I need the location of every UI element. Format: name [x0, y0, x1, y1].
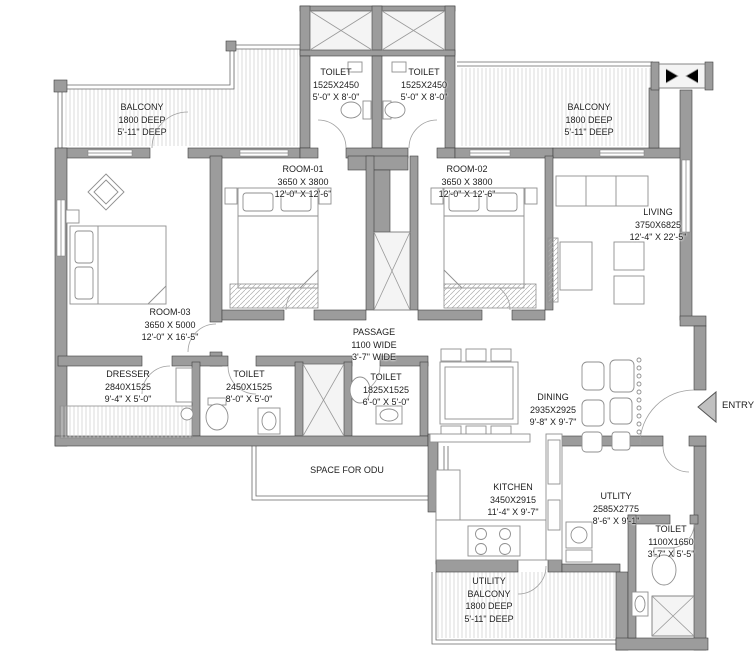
annotation-text: SPACE FOR ODU	[310, 464, 384, 477]
label-toilet-top-left: TOILET 1525X2450 5'-0" X 8'-0"	[313, 66, 360, 104]
room-name: LIVING	[630, 206, 687, 219]
room-dim-mm: 1100 WIDE	[351, 339, 396, 352]
room-name: BALCONY	[464, 588, 513, 601]
room-name: DRESSER	[105, 368, 152, 381]
room-name: TOILET	[313, 66, 360, 79]
room-dim-mm: 1100X1650	[648, 536, 695, 549]
label-room-01: ROOM-01 3650 X 3800 12'-0" X 12'-6"	[275, 163, 332, 201]
annotation-text: ENTRY	[722, 400, 754, 411]
label-toilet-mid-left: TOILET 2450X1525 8'-0" X 5'-0"	[226, 368, 273, 406]
room-dim-mm: 1825X1525	[363, 384, 410, 397]
label-passage: PASSAGE 1100 WIDE 3'-7" WIDE	[351, 326, 396, 364]
room-name: TOILET	[226, 368, 273, 381]
label-toilet-mid-right: TOILET 1825X1525 6'-0" X 5'-0"	[363, 371, 410, 409]
room-name: BALCONY	[117, 101, 166, 114]
room-dim-mm: 2935X2925	[530, 404, 577, 417]
balcony-right-floor	[457, 62, 657, 146]
utility-appliances	[566, 522, 592, 562]
label-living: LIVING 3750X6825 12'-4" X 22'-5"	[630, 206, 687, 244]
room-dim-ft: 6'-0" X 5'-0"	[363, 396, 410, 409]
room-dim-ft: 9'-4" X 5'-0"	[105, 393, 152, 406]
label-balcony-right: BALCONY 1800 DEEP 5'-11" DEEP	[564, 101, 613, 139]
room-dim-mm: 1525X2450	[401, 79, 448, 92]
label-kitchen: KITCHEN 3450X2915 11'-4" X 9'-7"	[487, 481, 538, 519]
label-utility-balcony: UTILITY BALCONY 1800 DEEP 5'-11" DEEP	[464, 575, 513, 625]
entry-arrow-icon	[698, 392, 716, 422]
bed-room-02	[431, 188, 537, 288]
room-dim-mm: 1800 DEEP	[564, 114, 613, 127]
room-dim-ft: 12'-0" X 12'-6"	[439, 188, 496, 201]
label-dresser: DRESSER 2840X1525 9'-4" X 5'-0"	[105, 368, 152, 406]
room-dim-ft: 12'-0" X 12'-6"	[275, 188, 332, 201]
room-name: TOILET	[363, 371, 410, 384]
room-dim-ft: 5'-11" DEEP	[564, 126, 613, 139]
room-dim-mm: 1800 DEEP	[117, 114, 166, 127]
label-dining: DINING 2935X2925 9'-8" X 9'-7"	[530, 391, 577, 429]
room-name: TOILET	[401, 66, 448, 79]
room-dim-ft: 5'-0" X 8'-0"	[313, 91, 360, 104]
room-dim-mm: 3650 X 5000	[142, 319, 199, 332]
room-name: ROOM-01	[275, 163, 332, 176]
bead-screen	[637, 358, 641, 434]
room-dim-mm: 3750X6825	[630, 219, 687, 232]
room-name: ROOM-03	[142, 306, 199, 319]
room-dim-ft: 5'-11" DEEP	[117, 126, 166, 139]
room-name: PASSAGE	[351, 326, 396, 339]
label-space-for-odu: SPACE FOR ODU	[310, 464, 384, 477]
room-dim-ft: 5'-0" X 8'-0"	[401, 91, 448, 104]
room-dim-ft: 11'-4" X 9'-7"	[487, 506, 538, 519]
room-dim-ft: 12'-4" X 22'-5"	[630, 231, 687, 244]
wardrobe-room-02	[444, 284, 536, 308]
room-name: ROOM-02	[439, 163, 496, 176]
label-toilet-top-right: TOILET 1525X2450 5'-0" X 8'-0"	[401, 66, 448, 104]
room-name: DINING	[530, 391, 577, 404]
bed-room-03	[66, 174, 166, 304]
room-name: BALCONY	[564, 101, 613, 114]
label-room-02: ROOM-02 3650 X 3800 12'-0" X 12'-6"	[439, 163, 496, 201]
room-dim-mm: 2585X2775	[593, 503, 640, 516]
balcony-left-floor	[58, 45, 300, 148]
label-entry: ENTRY	[722, 400, 754, 411]
shaft-mid	[303, 364, 344, 436]
room-dim-ft: 5'-11" DEEP	[464, 613, 513, 626]
duct-bottom-right	[652, 596, 694, 636]
room-dim-mm: 1800 DEEP	[464, 600, 513, 613]
room-dim-mm: 3450X2915	[487, 494, 538, 507]
closet-between-rooms	[374, 232, 410, 310]
room-dim-mm: 1525X2450	[313, 79, 360, 92]
room-dim-ft: 3'-7" WIDE	[351, 351, 396, 364]
label-room-03: ROOM-03 3650 X 5000 12'-0" X 16'-5"	[142, 306, 199, 344]
floor-plan: TOILET 1525X2450 5'-0" X 8'-0" TOILET 15…	[0, 0, 756, 666]
label-balcony-left: BALCONY 1800 DEEP 5'-11" DEEP	[117, 101, 166, 139]
room-dim-mm: 3650 X 3800	[439, 176, 496, 189]
room-dim-ft: 3'-7" X 5'-5"	[648, 548, 695, 561]
room-name: KITCHEN	[487, 481, 538, 494]
room-dim-ft: 12'-0" X 16'-5"	[142, 331, 199, 344]
bed-room-01	[225, 188, 331, 288]
wardrobe-room-01	[230, 284, 318, 308]
utility-balcony-floor	[432, 572, 616, 644]
room-dim-mm: 2840X1525	[105, 381, 152, 394]
dining-table	[440, 349, 518, 438]
room-name: UTILITY	[464, 575, 513, 588]
label-utility: UTLITY 2585X2775 8'-6" X 9'-1"	[593, 490, 640, 528]
room-dim-mm: 3650 X 3800	[275, 176, 332, 189]
room-dim-ft: 9'-8" X 9'-7"	[530, 416, 577, 429]
room-dim-ft: 8'-6" X 9'-1"	[593, 515, 640, 528]
shaft-top-left	[310, 11, 372, 50]
label-toilet-bottom-right: TOILET 1100X1650 3'-7" X 5'-5"	[648, 523, 695, 561]
lift-box	[659, 64, 705, 88]
room-dim-mm: 2450X1525	[226, 381, 273, 394]
shaft-top-right	[382, 11, 445, 50]
room-name: UTLITY	[593, 490, 640, 503]
room-name: TOILET	[648, 523, 695, 536]
room-dim-ft: 8'-0" X 5'-0"	[226, 393, 273, 406]
